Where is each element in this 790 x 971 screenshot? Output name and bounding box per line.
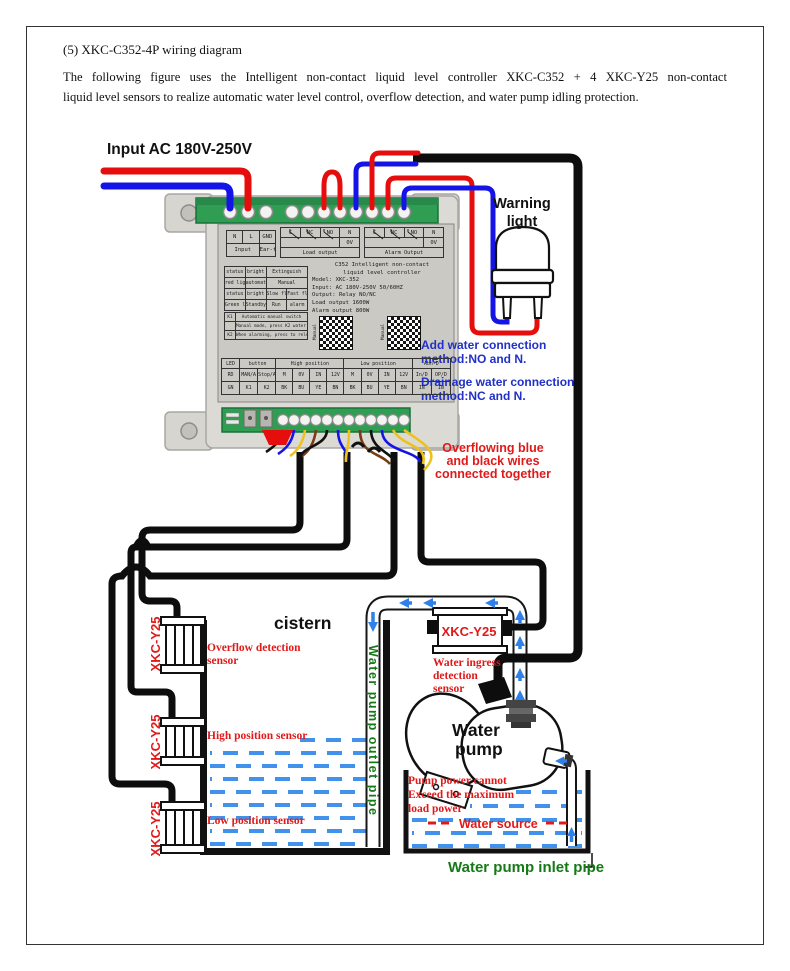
low-sensor-label: Low position sensor — [207, 815, 305, 827]
inlet-pipe-label: Water pump inlet pipe — [448, 859, 604, 876]
outlet-pipe-label: Water pump outlet pipe — [366, 645, 380, 816]
mount-hole — [181, 423, 197, 439]
warning-light-label: Warning — [493, 196, 550, 212]
water-pump-label: Water — [452, 720, 500, 740]
ingress-sensor-label: detection — [433, 670, 478, 682]
sensor-model-label: XKC-Y25 — [148, 802, 163, 857]
controller-device — [165, 194, 459, 450]
cistern-label: cistern — [274, 613, 331, 633]
warning-light — [492, 227, 553, 318]
add-water-note: method:NO and N. — [421, 352, 526, 366]
ingress-sensor-label: sensor — [433, 683, 464, 695]
bottom-terminal-strip — [222, 408, 410, 432]
diagram-canvas: Input AC 180V-250V Warning light Add wat… — [0, 0, 790, 971]
cable-high-sensor — [131, 452, 347, 722]
drainage-water-note: method:NC and N. — [421, 389, 526, 403]
cistern-water — [210, 740, 380, 844]
warning-light-label: light — [507, 214, 538, 230]
pump-cable-gland — [478, 677, 512, 704]
overflowing-note: Overflowing blue — [442, 441, 543, 455]
pump-power-note: Exceed the maximum — [408, 789, 514, 801]
drainage-water-note: Drainage water connection — [421, 375, 574, 389]
pump-power-note: Pump power cannot — [408, 775, 507, 787]
overflow-sensor-label: Overflow detection — [207, 642, 301, 654]
low-position-sensor — [161, 802, 205, 853]
overflowing-note: connected together — [435, 467, 551, 481]
mount-hole — [181, 205, 197, 221]
pump-power-note: load power — [408, 803, 463, 815]
overflow-detection-sensor — [161, 617, 205, 673]
wiring-diagram-page: (5) XKC-C352-4P wiring diagram The follo… — [0, 0, 790, 971]
high-position-sensor — [161, 718, 205, 765]
add-water-note: Add water connection — [421, 338, 546, 352]
ingress-sensor-model: XKC-Y25 — [442, 624, 497, 639]
controller-label-panel — [218, 224, 454, 402]
water-source-label: Water source — [459, 817, 538, 831]
sensor-model-label: XKC-Y25 — [148, 715, 163, 770]
sensor-model-label: XKC-Y25 — [148, 617, 163, 672]
cable-overflow-sensor — [142, 452, 300, 622]
overflow-sensor-label: sensor — [207, 655, 238, 667]
overflowing-note: and black wires — [446, 454, 539, 468]
ingress-sensor-label: Water ingress — [433, 657, 501, 669]
water-pump-label: pump — [455, 739, 503, 759]
high-sensor-label: High position sensor — [207, 730, 307, 742]
input-ac-label: Input AC 180V-250V — [107, 141, 253, 158]
